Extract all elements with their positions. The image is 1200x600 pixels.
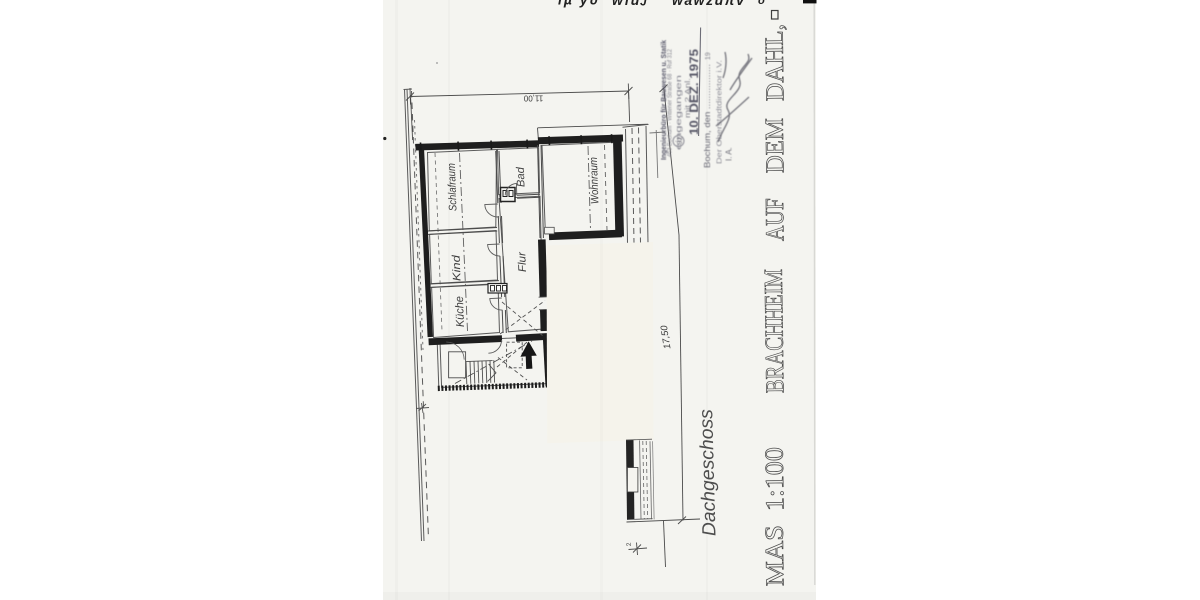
svg-text:I. A.: I. A.: [725, 147, 734, 161]
svg-text:DEM: DEM: [760, 118, 790, 173]
svg-text:1:100: 1:100: [760, 447, 790, 511]
svg-text:wawzuπv: wawzuπv: [672, 0, 745, 8]
svg-text:ıµ yυ: ıµ yυ: [558, 0, 600, 8]
svg-text:Wohnraum: Wohnraum: [588, 157, 602, 204]
svg-text:Bad: Bad: [515, 166, 528, 187]
svg-text:J: J: [640, 0, 647, 9]
svg-text:BRACHHEIM: BRACHHEIM: [759, 269, 790, 393]
svg-text:11,00: 11,00: [523, 94, 543, 103]
svg-text:AUF: AUF: [760, 198, 790, 241]
svg-text:o: o: [758, 0, 765, 7]
svg-text:Kind: Kind: [451, 254, 464, 281]
svg-text:wıu: wıu: [612, 0, 641, 8]
svg-text:92: 92: [677, 137, 684, 145]
svg-text:Küche: Küche: [454, 296, 467, 327]
svg-text:MAS: MAS: [760, 525, 790, 586]
svg-text:DAHL,: DAHL,: [759, 24, 789, 101]
svg-text:Flur: Flur: [516, 251, 529, 273]
svg-text:Der Oberstadtdirektor i.V.: Der Oberstadtdirektor i.V.: [715, 60, 724, 164]
svg-text:Dachgeschoss: Dachgeschoss: [696, 408, 720, 536]
svg-text:Schlafraum: Schlafraum: [446, 163, 460, 211]
